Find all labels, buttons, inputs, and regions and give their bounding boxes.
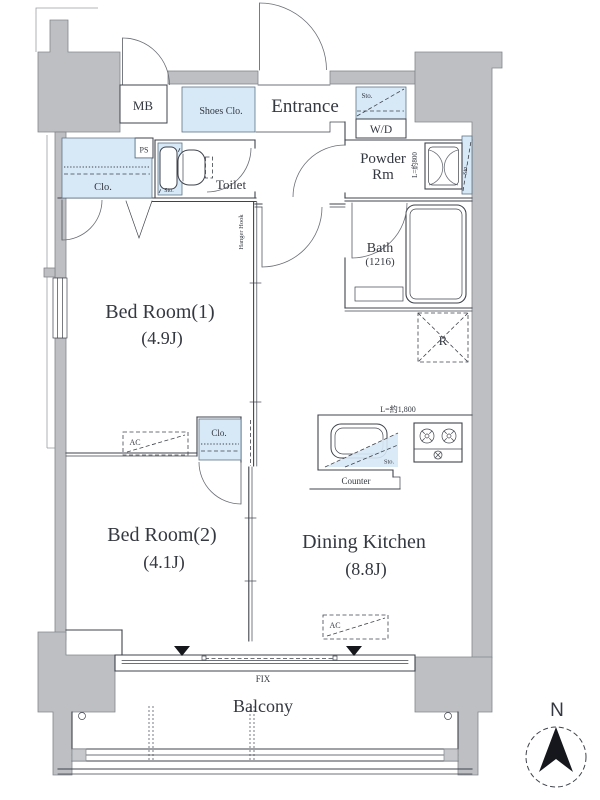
balcony-drain-left xyxy=(79,713,86,720)
label-wd: W/D xyxy=(370,124,392,136)
label-entrance: Entrance xyxy=(271,96,339,117)
label-sto-powder: Sto. xyxy=(463,165,469,175)
label-kitchen-length: L=約1,800 xyxy=(380,404,415,414)
label-sto-wd: Sto. xyxy=(361,92,372,100)
label-toilet: Toilet xyxy=(216,177,247,192)
label-bedroom2: Bed Room(2) xyxy=(107,524,216,546)
balcony-drain-right xyxy=(445,713,452,720)
hall-door-arc xyxy=(262,207,322,267)
label-bedroom1: Bed Room(1) xyxy=(105,301,214,323)
label-bath-size: (1216) xyxy=(365,256,395,268)
label-shoes-closet: Shoes Clo. xyxy=(199,106,242,117)
stove xyxy=(414,423,462,462)
label-ps: PS xyxy=(140,146,149,155)
floor-plan: N MB Shoes Clo. Entrance Sto. W/D PS Clo… xyxy=(0,0,600,800)
label-ac2: AC xyxy=(329,621,340,630)
label-powder-line2: Rm xyxy=(372,167,394,183)
entrance-door-arc xyxy=(260,3,327,70)
label-balcony: Balcony xyxy=(233,696,293,716)
mb-door-arc xyxy=(123,38,170,85)
powder-door-arc xyxy=(293,145,345,197)
closet1-bifold-door xyxy=(126,201,152,238)
label-hanger-hook: Hanger Hook xyxy=(238,214,245,250)
vanity-fixture xyxy=(425,143,462,189)
label-ac1: AC xyxy=(129,438,140,447)
label-sto-kitchen: Sto. xyxy=(384,459,395,466)
toilet-fixture xyxy=(160,147,213,189)
label-refrigerator: R xyxy=(439,333,448,348)
wall-top-left-column xyxy=(38,20,120,132)
label-bedroom1-size: (4.9J) xyxy=(141,328,183,349)
wall-left-lower xyxy=(55,338,66,640)
wall-top-bar-right xyxy=(330,71,415,84)
label-closet2: Clo. xyxy=(211,428,226,438)
label-bedroom2-size: (4.1J) xyxy=(143,552,185,573)
closet2-box xyxy=(199,419,241,460)
window-band xyxy=(115,646,415,671)
label-vanity-length: L=約800 xyxy=(410,152,419,178)
label-counter: Counter xyxy=(342,476,371,486)
closet2-door-arc xyxy=(199,462,241,504)
label-mb: MB xyxy=(133,98,154,113)
label-bath: Bath xyxy=(367,241,393,256)
balcony-area xyxy=(58,706,472,774)
north-arrow xyxy=(539,727,573,772)
compass: N xyxy=(526,700,586,787)
exterior-walls xyxy=(38,20,502,775)
closet1-door-arc xyxy=(62,200,102,240)
label-powder-line1: Powder xyxy=(360,151,406,167)
label-closet1: Clo. xyxy=(94,182,112,193)
label-sto-toilet: Sto. xyxy=(164,188,174,194)
label-dining-kitchen-size: (8.8J) xyxy=(345,559,387,580)
label-fix: FIX xyxy=(256,674,271,684)
left-window xyxy=(53,278,67,338)
wall-top-bar-left xyxy=(168,71,258,84)
label-dining-kitchen: Dining Kitchen xyxy=(302,531,426,553)
compass-north-label: N xyxy=(550,700,564,721)
